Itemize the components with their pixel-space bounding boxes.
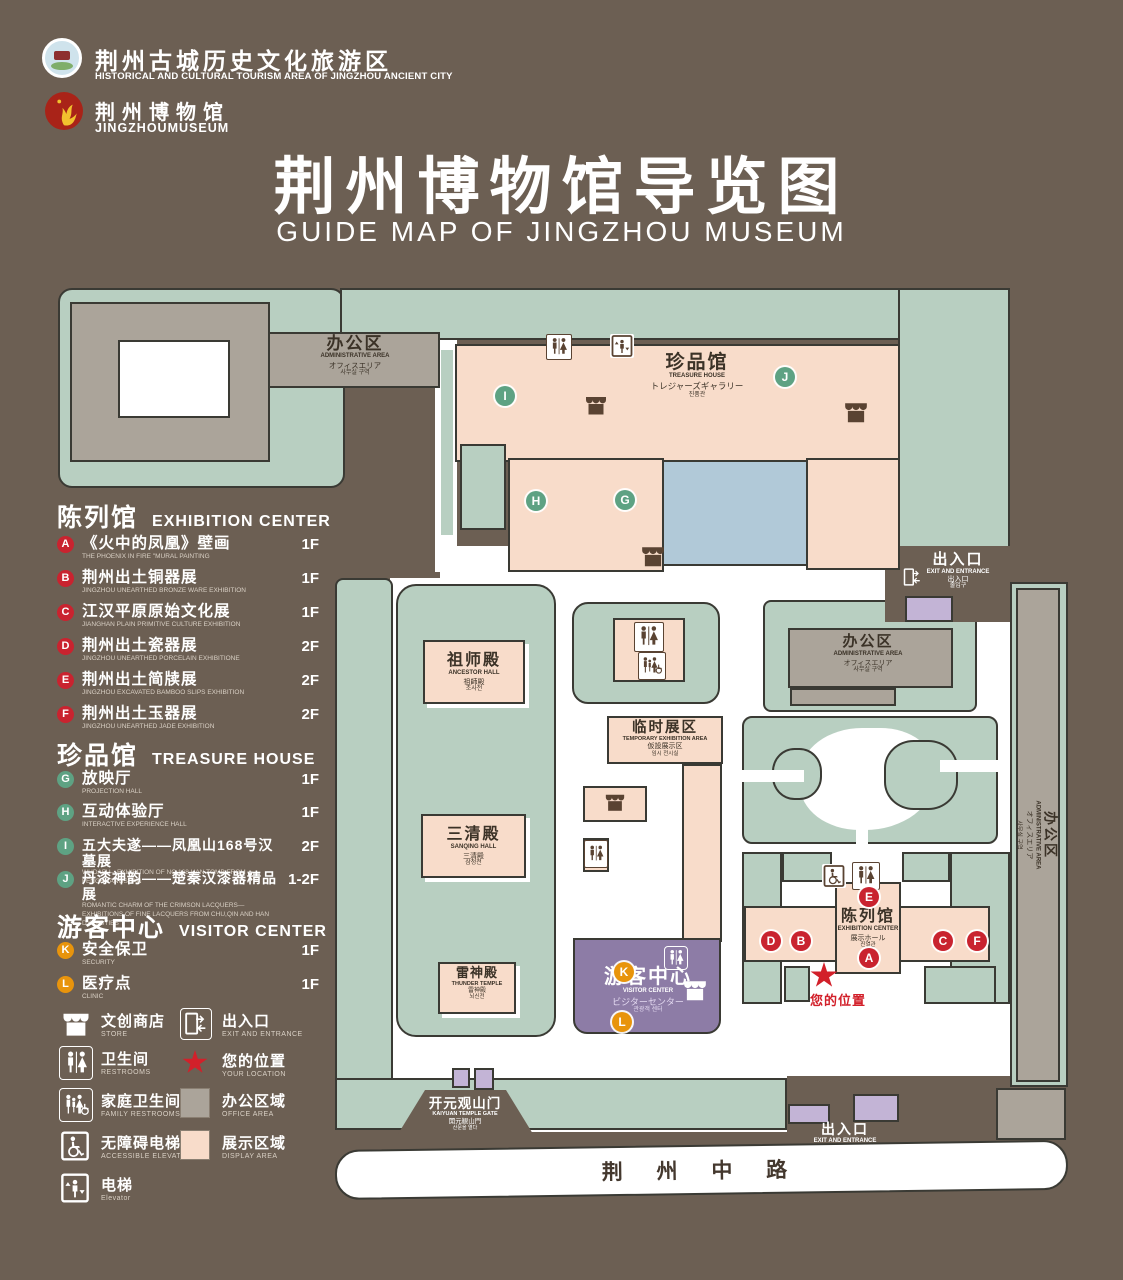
badge-h: H — [57, 804, 74, 821]
legend-item-h: H互动体验厅INTERACTIVE EXPERIENCE HALL1F — [57, 803, 319, 831]
admin-e-zh: 办公区 — [795, 634, 941, 651]
badge-c: C — [57, 604, 74, 621]
restrooms-label-en: RESTROOMS — [101, 1069, 151, 1076]
garden-path-s — [856, 820, 868, 844]
badge-i: I — [57, 838, 74, 855]
admin-strip-en: ADMINISTRATIVE AREA — [1035, 755, 1041, 915]
building-admin-east-step — [790, 688, 896, 706]
item-d-zh: 荆州出土瓷器展 — [82, 637, 240, 655]
store-icon — [61, 1010, 91, 1040]
gate-en: KAIYUAN TEMPLE GATE — [400, 1111, 530, 1117]
map-marker-e: E — [859, 887, 879, 907]
legend-treasure-en: TREASURE HOUSE — [152, 751, 315, 768]
label-sanqing-hall: 三清殿 SANQING HALL 三清殿 삼청전 — [423, 826, 524, 867]
map-marker-i: I — [495, 386, 515, 406]
badge-e: E — [57, 672, 74, 689]
restrooms-icon — [59, 1046, 93, 1080]
guide-map-poster: 荆州古城历史文化旅游区 HISTORICAL AND CULTURAL TOUR… — [0, 0, 1123, 1280]
exit-label-zh: 出入口 — [222, 1010, 303, 1031]
store-label-en: STORE — [101, 1031, 165, 1038]
item-h-en: INTERACTIVE EXPERIENCE HALL — [82, 821, 187, 830]
treasure-zh: 珍品馆 — [627, 352, 767, 373]
item-l-floor: 1F — [301, 976, 319, 993]
page-title-zh: 荆州博物馆导览图 — [0, 136, 1123, 226]
item-k-zh: 安全保卫 — [82, 941, 148, 959]
legend-section-exhibition: 陈列馆EXHIBITION CENTER — [57, 498, 331, 534]
store-icon — [604, 792, 626, 814]
item-c-floor: 1F — [301, 604, 319, 621]
your-location-star-icon — [182, 1050, 208, 1075]
legend-treasure-zh: 珍品馆 — [57, 742, 138, 770]
admin-strip-ja: オフィスエリア — [1025, 755, 1035, 915]
tourism-area-name-en: HISTORICAL AND CULTURAL TOURISM AREA OF … — [95, 71, 453, 82]
item-h-zh: 互动体验厅 — [82, 803, 187, 821]
tourism-area-logo — [42, 38, 82, 78]
admin-nw-en: ADMINISTRATIVE AREA — [280, 353, 430, 360]
temp-en: TEMPORARY EXHIBITION AREA — [607, 736, 723, 742]
store-label-zh: 文创商店 — [101, 1010, 165, 1031]
item-c-zh: 江汉平原原始文化展 — [82, 603, 240, 621]
legend-item-d: D荆州出土瓷器展JINGZHOU UNEARTHED PORCELAIN EXH… — [57, 637, 319, 665]
lawn-west-strip — [335, 578, 393, 1130]
map-marker-k: K — [614, 962, 634, 982]
legend-item-c: C江汉平原原始文化展JIANGHAN PLAIN PRIMITIVE CULTU… — [57, 603, 319, 631]
temp-ko: 임시 전시실 — [607, 751, 723, 757]
accessible-elevator-icon — [59, 1130, 91, 1162]
elevator-icon — [59, 1172, 91, 1204]
garden-path-e — [940, 760, 998, 772]
elevator-icon — [610, 334, 634, 358]
accessible-label-zh: 无障碍电梯 — [101, 1132, 193, 1153]
map-marker-b: B — [791, 931, 811, 951]
display-area-swatch — [180, 1130, 210, 1160]
item-b-en: JINGZHOU UNEARTHED BRONZE WARE EXHIBITIO… — [82, 587, 246, 596]
sanqing-en: SANQING HALL — [423, 844, 524, 851]
accessible-label-en: ACCESSIBLE ELEVATOR — [101, 1153, 193, 1160]
legend-item-f: F荆州出土玉器展JINGZHOU UNEARTHED JADE EXHIBITI… — [57, 705, 319, 733]
family-restrooms-icon — [638, 652, 666, 680]
item-g-en: PROJECTION HALL — [82, 788, 142, 797]
page-title-en: GUIDE MAP OF JINGZHOU MUSEUM — [0, 216, 1123, 248]
display-label-en: DISPLAY AREA — [222, 1153, 286, 1160]
legend-section-treasure: 珍品馆TREASURE HOUSE — [57, 736, 315, 772]
garden-path-w — [742, 770, 804, 782]
item-l-en: CLINIC — [82, 993, 132, 1002]
gate-zh: 开元观山门 — [400, 1096, 530, 1111]
item-i-zh: 五大夫遂——凤凰山168号汉墓展 — [82, 837, 280, 869]
item-h-floor: 1F — [301, 804, 319, 821]
restrooms-icon — [664, 946, 688, 970]
courtyard-admin-northwest — [118, 340, 230, 418]
family-label-en: FAMILY RESTROOMS — [101, 1111, 181, 1118]
item-k-en: SECURITY — [82, 959, 148, 968]
gate-ko: 산문을 열다 — [400, 1126, 530, 1132]
admin-strip-zh: 办公区 — [1041, 755, 1061, 915]
sanqing-ko: 삼청전 — [423, 860, 524, 867]
road: 荆 州 中 路 — [335, 1140, 1069, 1200]
restrooms-icon — [546, 334, 572, 360]
item-a-zh: 《火中的凤凰》壁画 — [82, 535, 231, 553]
display-label-zh: 展示区域 — [222, 1132, 286, 1153]
label-temp-exhibition: 临时展区 TEMPORARY EXHIBITION AREA 仮設展示区 임시 … — [607, 720, 723, 757]
exit-label-en: EXIT AND ENTRANCE — [222, 1031, 303, 1038]
legend-item-e: E荆州出土简牍展JINGZHOU EXCAVATED BAMBOO SLIPS … — [57, 671, 319, 699]
item-e-zh: 荆州出土简牍展 — [82, 671, 244, 689]
item-j-floor: 1-2F — [288, 871, 319, 888]
road-name: 荆 州 中 路 — [601, 1153, 801, 1186]
thunder-en: THUNDER TEMPLE — [440, 981, 514, 987]
item-d-floor: 2F — [301, 638, 319, 655]
restrooms-icon — [634, 622, 664, 652]
lawn-exhibition-s2 — [924, 966, 996, 1004]
store-icon — [640, 544, 666, 570]
exhibition-en: EXHIBITION CENTER — [795, 926, 941, 933]
label-admin-east: 办公区 ADMINISTRATIVE AREA オフィスエリア 사무실 구역 — [795, 634, 941, 674]
temp-zh: 临时展区 — [607, 720, 723, 736]
item-e-floor: 2F — [301, 672, 319, 689]
badge-g: G — [57, 771, 74, 788]
lawn-treasure-strip — [441, 350, 453, 535]
ancestor-en: ANCESTOR HALL — [425, 670, 523, 677]
legend-item-k: K安全保卫SECURITY1F — [57, 941, 319, 969]
item-l-zh: 医疗点 — [82, 975, 132, 993]
map-marker-a: A — [859, 948, 879, 968]
label-thunder-temple: 雷神殿 THUNDER TEMPLE 雷神殿 뇌신전 — [440, 966, 514, 1001]
legend-item-l: L医疗点CLINIC1F — [57, 975, 319, 1003]
badge-b: B — [57, 570, 74, 587]
building-southeast-block — [996, 1088, 1066, 1140]
restrooms-label-zh: 卫生间 — [101, 1048, 151, 1069]
exhibition-zh: 陈列馆 — [795, 908, 941, 926]
legend-item-b: B荆州出土铜器展JINGZHOU UNEARTHED BRONZE WARE E… — [57, 569, 319, 597]
family-restrooms-icon — [59, 1088, 93, 1122]
office-label-en: OFFICE AREA — [222, 1111, 286, 1118]
item-f-zh: 荆州出土玉器展 — [82, 705, 214, 723]
thunder-ko: 뇌신전 — [440, 994, 514, 1000]
item-f-floor: 2F — [301, 706, 319, 723]
item-g-zh: 放映厅 — [82, 770, 142, 788]
admin-e-ko: 사무실 구역 — [795, 667, 941, 674]
treasure-ja: トレジャーズギャラリー — [627, 382, 767, 392]
item-a-floor: 1F — [301, 536, 319, 553]
legend-item-a: A《火中的凤凰》壁画THE PHOENIX IN FIRE "MURAL PAI… — [57, 535, 319, 563]
accessible-elevator-icon — [822, 864, 846, 888]
lawn-treasure-patch — [460, 444, 506, 530]
elevator-label-en: Elevator — [101, 1195, 133, 1202]
map-marker-c: C — [933, 931, 953, 951]
treasure-en: TREASURE HOUSE — [627, 373, 767, 380]
badge-l: L — [57, 976, 74, 993]
legend-visitor-en: VISITOR CENTER — [179, 923, 327, 940]
badge-a: A — [57, 536, 74, 553]
legend-exhibition-zh: 陈列馆 — [57, 504, 138, 532]
item-d-en: JINGZHOU UNEARTHED PORCELAIN EXHIBITIONE — [82, 655, 240, 664]
sanqing-zh: 三清殿 — [423, 826, 524, 844]
label-ancestor-hall: 祖师殿 ANCESTOR HALL 祖師殿 조사전 — [425, 652, 523, 693]
visitor-ko: 관광객 센터 — [577, 1007, 719, 1014]
admin-strip-ko: 사무실 구역 — [1016, 755, 1025, 915]
building-treasure-southeast — [806, 458, 900, 570]
badge-k: K — [57, 942, 74, 959]
item-j-zh: 丹漆神韵——楚秦汉漆器精品展 — [82, 870, 280, 902]
item-a-en: THE PHOENIX IN FIRE "MURAL PAINTING — [82, 553, 231, 562]
label-treasure-house: 珍品馆 TREASURE HOUSE トレジャーズギャラリー 진품관 — [627, 352, 767, 398]
your-location-label: 您的位置 — [800, 990, 876, 1009]
office-label-zh: 办公区域 — [222, 1090, 286, 1111]
museum-logo — [45, 92, 83, 130]
restrooms-icon — [584, 840, 608, 868]
exit-northeast-door-icon — [902, 566, 922, 588]
treasure-ko: 진품관 — [627, 392, 767, 399]
label-admin-strip: 办公区 ADMINISTRATIVE AREA オフィスエリア 사무실 구역 — [1016, 760, 1060, 910]
location-label-en: YOUR LOCATION — [222, 1071, 286, 1078]
admin-e-en: ADMINISTRATIVE AREA — [795, 651, 941, 658]
map-marker-h: H — [526, 491, 546, 511]
map-marker-l: L — [612, 1012, 632, 1032]
map-marker-d: D — [761, 931, 781, 951]
building-temp-corridor — [682, 764, 722, 942]
entrance-northeast-pad — [905, 596, 953, 622]
ancestor-zh: 祖师殿 — [425, 652, 523, 670]
map-marker-g: G — [615, 490, 635, 510]
admin-nw-zh: 办公区 — [280, 334, 430, 353]
map-marker-j: J — [775, 367, 795, 387]
store-icon — [584, 394, 608, 418]
store-icon — [843, 400, 869, 426]
location-label-zh: 您的位置 — [222, 1050, 286, 1071]
item-b-floor: 1F — [301, 570, 319, 587]
entrance-south-pad2 — [853, 1094, 899, 1122]
gate-pillar-west — [452, 1068, 470, 1088]
gate-pillar-east — [474, 1068, 494, 1090]
item-g-floor: 1F — [301, 771, 319, 788]
label-exhibition-center: 陈列馆 EXHIBITION CENTER 展示ホール 진열관 — [795, 908, 941, 949]
office-area-swatch — [180, 1088, 210, 1118]
thunder-zh: 雷神殿 — [440, 966, 514, 981]
elevator-label-zh: 电梯 — [101, 1174, 133, 1195]
item-e-en: JINGZHOU EXCAVATED BAMBOO SLIPS EXHIBITI… — [82, 689, 244, 698]
legend-section-visitor: 游客中心VISITOR CENTER — [57, 908, 327, 944]
item-b-zh: 荆州出土铜器展 — [82, 569, 246, 587]
item-c-en: JIANGHAN PLAIN PRIMITIVE CULTURE EXHIBIT… — [82, 621, 240, 630]
legend-visitor-zh: 游客中心 — [57, 914, 165, 942]
item-k-floor: 1F — [301, 942, 319, 959]
legend-item-g: G放映厅PROJECTION HALL1F — [57, 770, 319, 798]
lawn-exhibition-gap2 — [902, 852, 950, 882]
label-gate: 开元观山门 KAIYUAN TEMPLE GATE 開元観山門 산문을 열다 — [400, 1096, 530, 1131]
family-label-zh: 家庭卫生间 — [101, 1090, 181, 1111]
badge-j: J — [57, 871, 74, 888]
item-f-en: JINGZHOU UNEARTHED JADE EXHIBITION — [82, 723, 214, 732]
label-admin-northwest: 办公区 ADMINISTRATIVE AREA オフィスエリア 사무실 구역 — [280, 334, 430, 377]
store-icon — [682, 978, 708, 1004]
ancestor-ko: 조사전 — [425, 686, 523, 693]
lawn-northeast — [898, 288, 1010, 560]
admin-nw-ko: 사무실 구역 — [280, 370, 430, 377]
museum-name-en: JINGZHOUMUSEUM — [95, 121, 229, 135]
legend-exhibition-en: EXHIBITION CENTER — [152, 513, 331, 530]
item-i-floor: 2F — [301, 838, 319, 855]
exit-s-zh: 出入口 — [795, 1122, 895, 1138]
garden-island-east — [884, 740, 958, 810]
badge-f: F — [57, 706, 74, 723]
admin-nw-ja: オフィスエリア — [280, 362, 430, 370]
exit-icon — [180, 1008, 212, 1040]
badge-d: D — [57, 638, 74, 655]
restrooms-icon — [852, 862, 880, 890]
map-marker-f: F — [967, 931, 987, 951]
